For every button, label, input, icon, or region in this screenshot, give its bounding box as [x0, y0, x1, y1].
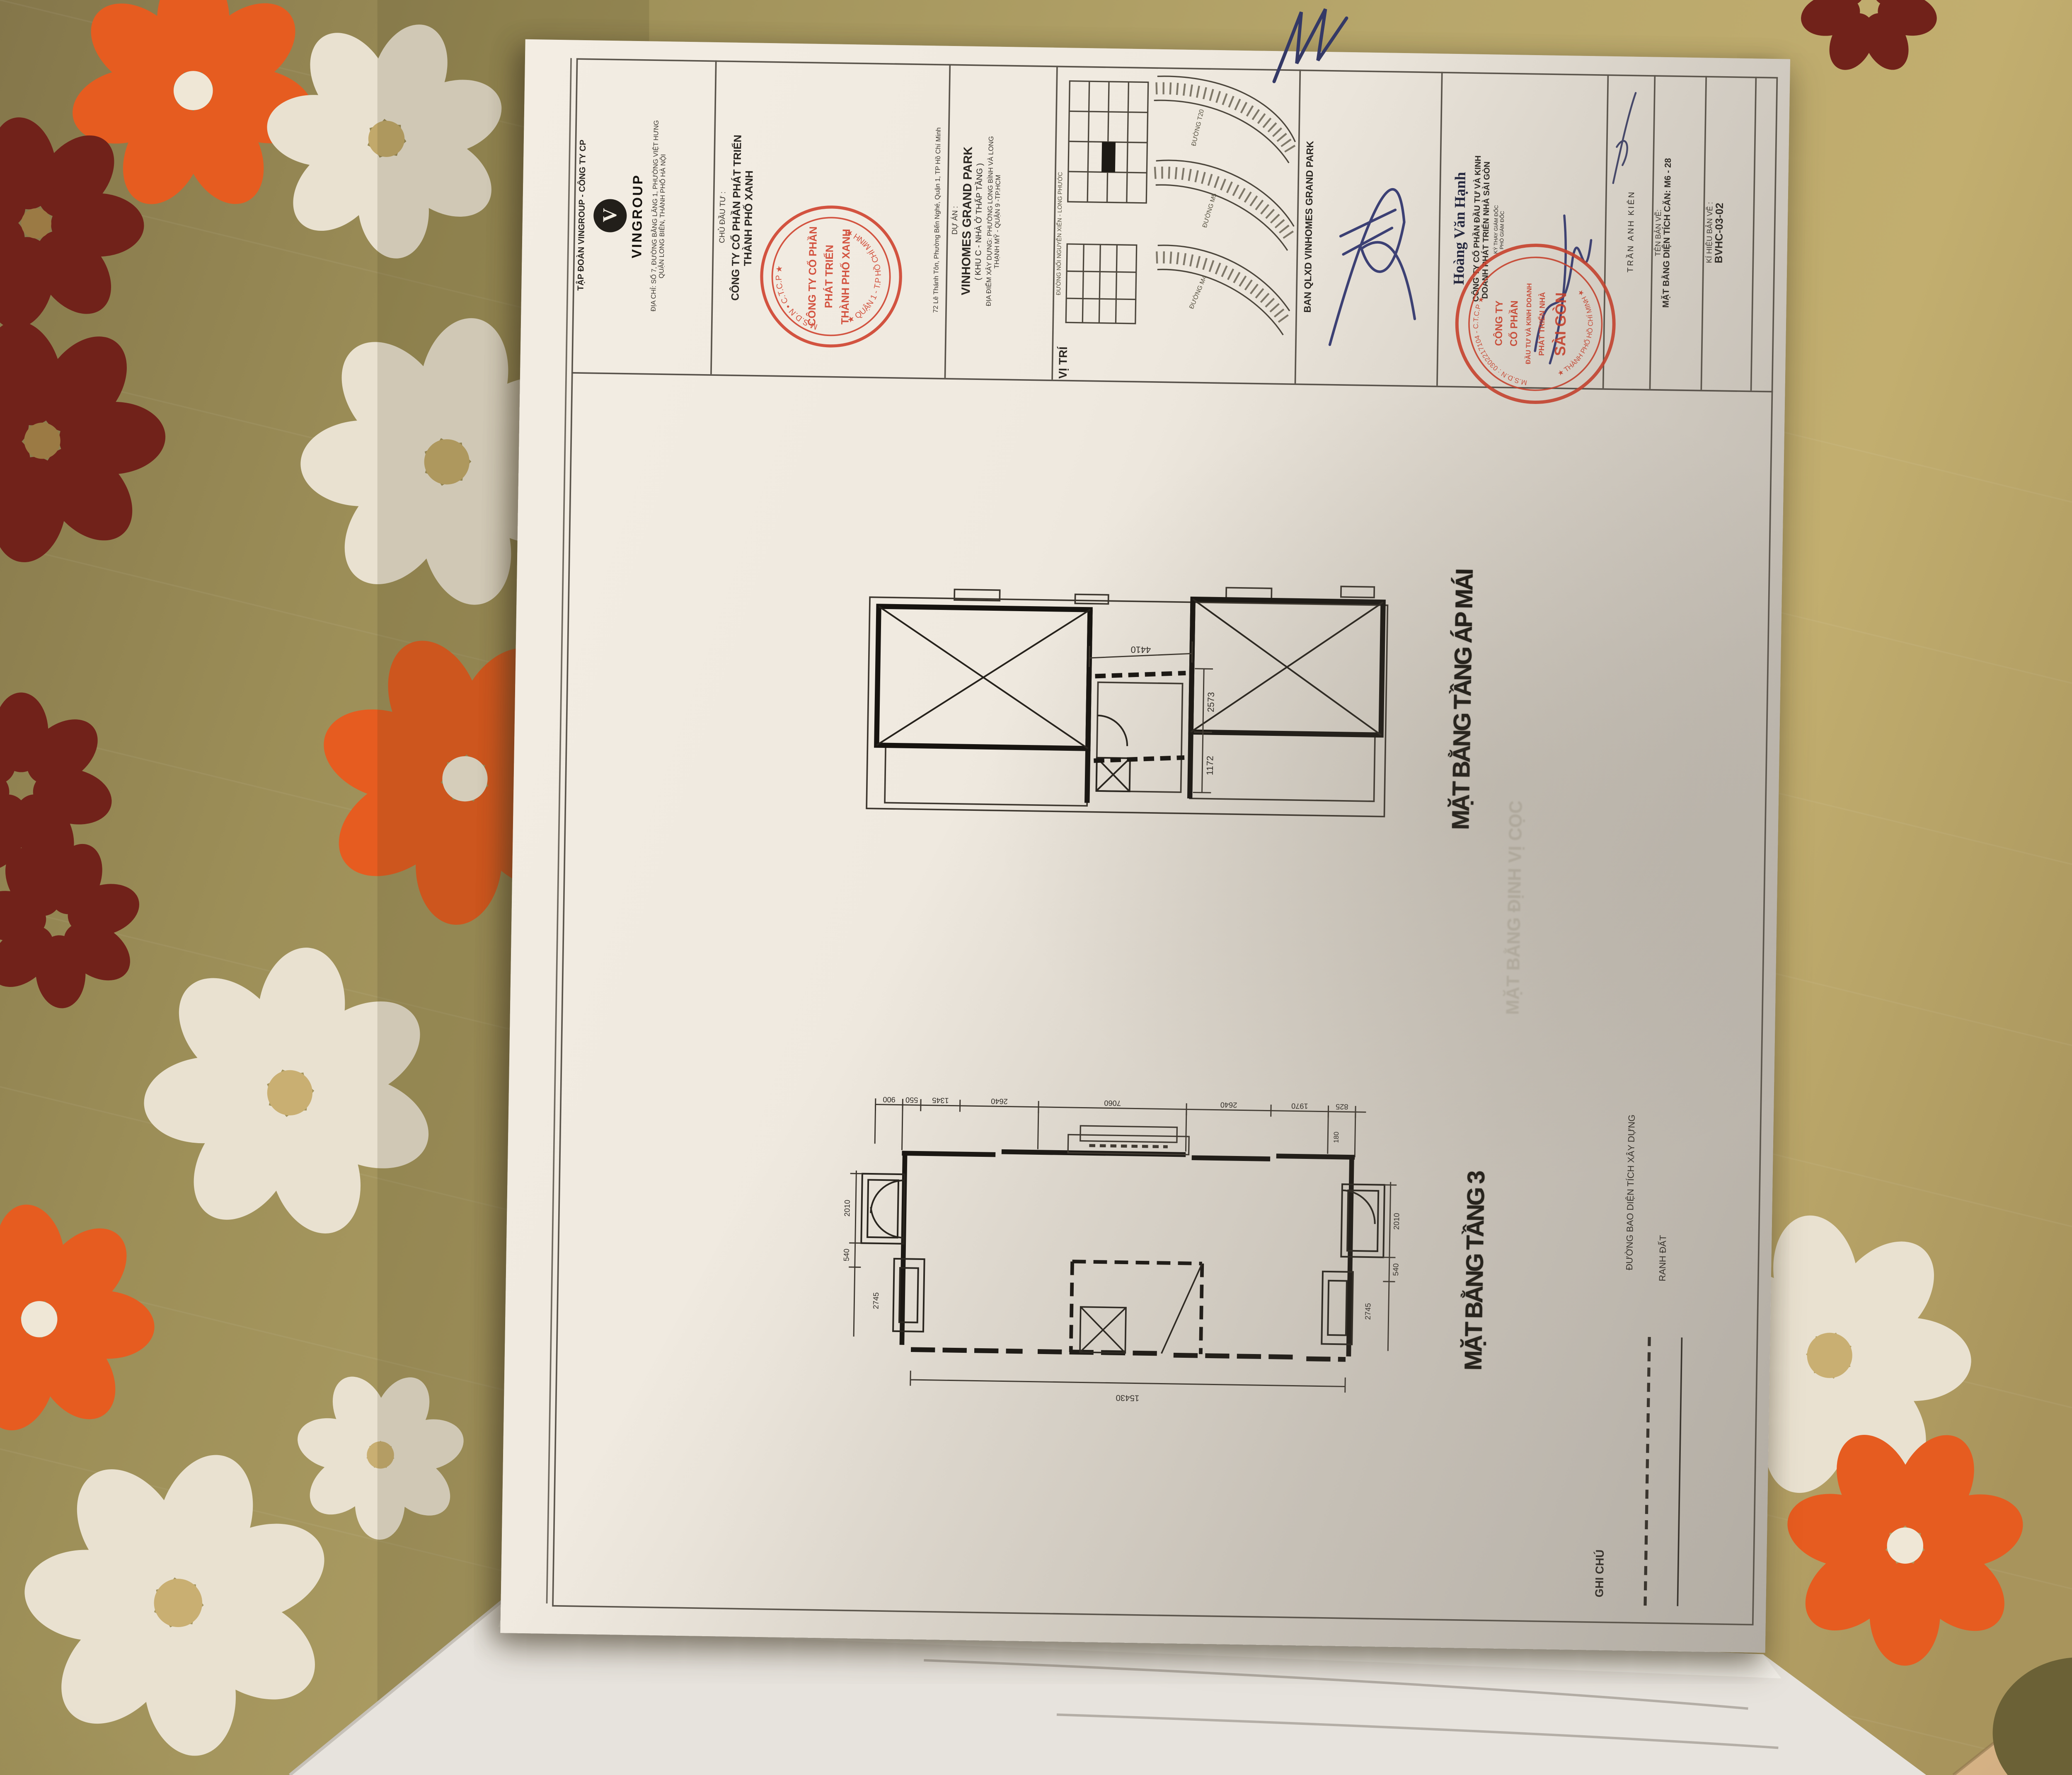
- t3-dim-2640a: 2640: [991, 1097, 1008, 1106]
- approver-signature: [1315, 91, 1440, 365]
- plan-tang-3: 900 550 1345 2640 7060 2640 1970 825 180: [840, 1080, 1404, 1413]
- t3-left-2010: 2010: [843, 1200, 852, 1217]
- stamp2-line5: SÀI GÒN: [1551, 292, 1569, 356]
- t3-left-540: 540: [842, 1248, 850, 1261]
- titleblock-cell-vingroup: TẬP ĐOÀN VINGROUP - CÔNG TY CP V VINGROU…: [571, 58, 717, 374]
- vingroup-brand: VINGROUP: [629, 174, 646, 259]
- plan-ap-mai: 4410 2573 1172: [860, 576, 1392, 833]
- location-map: ĐƯỜNG T20 ĐƯỜNG M5 ĐƯỜNG M4: [1053, 66, 1302, 381]
- investor-label: CHỦ ĐẦU TƯ :: [718, 60, 731, 375]
- drawing-sheet: TẬP ĐOÀN VINGROUP - CÔNG TY CP V VINGROU…: [500, 39, 1790, 1653]
- t3-dim-2640b: 2640: [1220, 1100, 1237, 1109]
- drafter-signature: [1607, 87, 1641, 193]
- t3-dim-7060: 7060: [1104, 1099, 1121, 1108]
- titleblock-cell-investor: CHỦ ĐẦU TƯ : CÔNG TY CỔ PHẦN PHÁT TRIỂN …: [712, 60, 951, 378]
- t3-dim-180: 180: [1333, 1132, 1340, 1143]
- apmai-dim-1172: 1172: [1205, 756, 1215, 775]
- map-street-m5: ĐƯỜNG M5: [1201, 193, 1218, 229]
- t3-right-2745: 2745: [1364, 1303, 1372, 1320]
- sheetinfo-band-empty: [1750, 77, 1778, 391]
- apmai-dim-4410: 4410: [1130, 644, 1151, 655]
- vingroup-logo-letter: V: [599, 208, 622, 223]
- map-street-m4: ĐƯỜNG M4: [1187, 274, 1208, 310]
- t3-right-540: 540: [1392, 1263, 1400, 1276]
- legend-title: GHI CHÚ: [1594, 1536, 1607, 1611]
- titleblock-cell-project: DỰ ÁN : VINHOMES GRAND PARK ( KHU C - NH…: [946, 64, 1058, 380]
- stamp2-line3: ĐẦU TƯ VÀ KINH DOANH: [1524, 283, 1533, 364]
- stamp2-line2: CỔ PHẦN: [1508, 300, 1520, 346]
- stamp1-line3: THÀNH PHỐ XANH: [839, 229, 853, 324]
- sheetinfo-band-code: KÍ HIỆU BẢN VẼ : BVHC-03-02: [1700, 76, 1755, 391]
- t3-dim-1970: 1970: [1291, 1102, 1308, 1110]
- t3-dim-825: 825: [1336, 1103, 1348, 1111]
- sheetinfo-band-name: TÊN BẢN VẼ: MẶT BẰNG DIỆN TÍCH CĂN: M6 -…: [1649, 75, 1705, 390]
- t3-left-2745: 2745: [871, 1292, 880, 1309]
- stamp1-line2: PHÁT TRIỂN: [823, 245, 836, 308]
- clothing-corner: JAM BAC: [1944, 1428, 2072, 1775]
- pen-scribble-top: [1265, 0, 1371, 94]
- photo-of-floorplan-sheet: TẬP ĐOÀN VINGROUP - CÔNG TY CP V VINGROU…: [0, 0, 2072, 1775]
- t3-dim-900: 900: [883, 1095, 896, 1104]
- investor-address: 72 Lê Thánh Tôn, Phường Bến Nghé, Quận 1…: [932, 64, 945, 378]
- titleblock-cell-location-map: ĐƯỜNG T20 ĐƯỜNG M5 ĐƯỜNG M4 ĐƯỜNG NỐI NG…: [1052, 66, 1301, 384]
- apmai-dim-2573: 2573: [1205, 692, 1216, 712]
- titleblock-cell-sheetinfo: TRẦN ANH KIÊN TÊN BẢN VẼ: MẶT BẰNG DIỆN …: [1604, 74, 1778, 391]
- saigon-stamp: M.S.D.N : 0302217104 - C.T.C.P ★ ★ THÀNH…: [1450, 238, 1621, 409]
- map-street-t20: ĐƯỜNG T20: [1190, 109, 1205, 147]
- t3-bottom-15430: 15430: [1116, 1393, 1139, 1403]
- t3-dim-1345: 1345: [932, 1096, 949, 1105]
- titleblock-cell-approver: BAN QLXD VINHOMES GRAND PARK: [1297, 70, 1443, 386]
- vingroup-group-line: TẬP ĐOÀN VINGROUP - CÔNG TY CP: [576, 58, 591, 372]
- stamp1-line1: CÔNG TY CỔ PHẦN: [806, 226, 820, 326]
- stamp2-line1: CÔNG TY: [1493, 300, 1505, 346]
- stamp2-line4: PHÁT TRIỂN NHÀ: [1537, 292, 1547, 356]
- title-tang-3: MẶT BẰNG TẦNG 3: [1461, 1111, 1493, 1431]
- vingroup-logo-icon: V: [594, 199, 627, 232]
- location-label: VỊ TRÍ: [1057, 346, 1070, 378]
- investor-stamp: M.S.D.N • C.T.C.P ★ ★ QUẬN 1 - T.P HỒ CH…: [755, 200, 908, 353]
- t3-right-2010: 2010: [1392, 1213, 1401, 1230]
- legend-item-2: RANH ĐẤT: [1659, 1216, 1670, 1301]
- t3-dim-550: 550: [905, 1096, 918, 1104]
